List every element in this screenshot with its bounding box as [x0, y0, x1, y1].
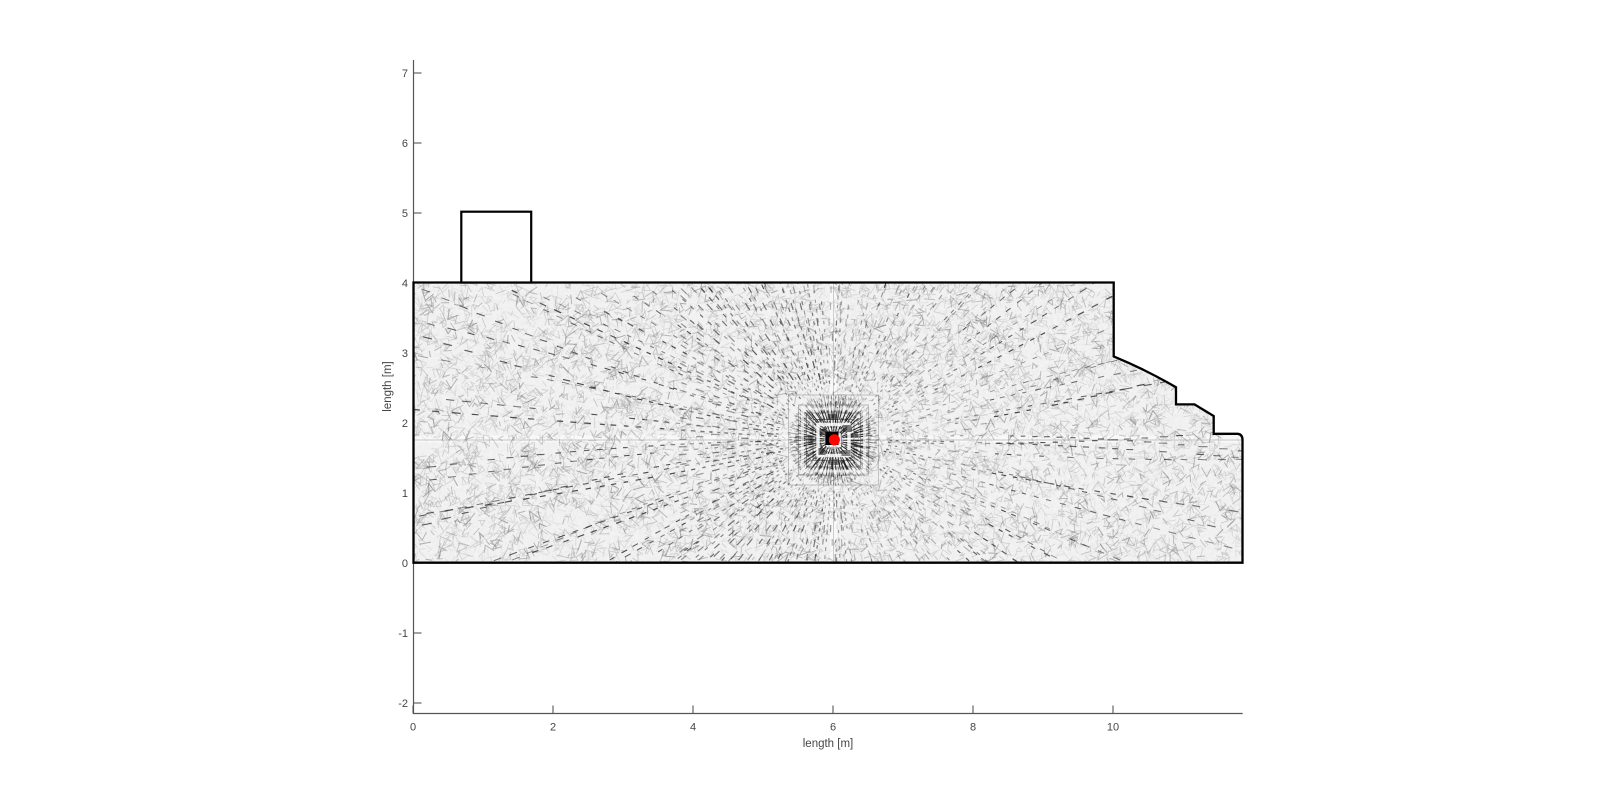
- svg-text:6: 6: [402, 138, 408, 150]
- svg-text:6: 6: [830, 722, 836, 734]
- svg-text:length [m]: length [m]: [803, 738, 854, 750]
- svg-text:10: 10: [1107, 722, 1119, 734]
- svg-text:4: 4: [690, 722, 696, 734]
- svg-text:4: 4: [402, 278, 408, 290]
- svg-text:7: 7: [402, 68, 408, 80]
- svg-text:-1: -1: [398, 628, 408, 640]
- svg-text:8: 8: [970, 722, 976, 734]
- svg-text:length [m]: length [m]: [382, 361, 394, 412]
- svg-text:1: 1: [402, 488, 408, 500]
- svg-text:3: 3: [402, 348, 408, 360]
- svg-text:0: 0: [402, 558, 408, 570]
- svg-text:2: 2: [550, 722, 556, 734]
- svg-text:5: 5: [402, 208, 408, 220]
- svg-text:0: 0: [410, 722, 416, 734]
- svg-text:-2: -2: [398, 698, 408, 710]
- svg-text:2: 2: [402, 418, 408, 430]
